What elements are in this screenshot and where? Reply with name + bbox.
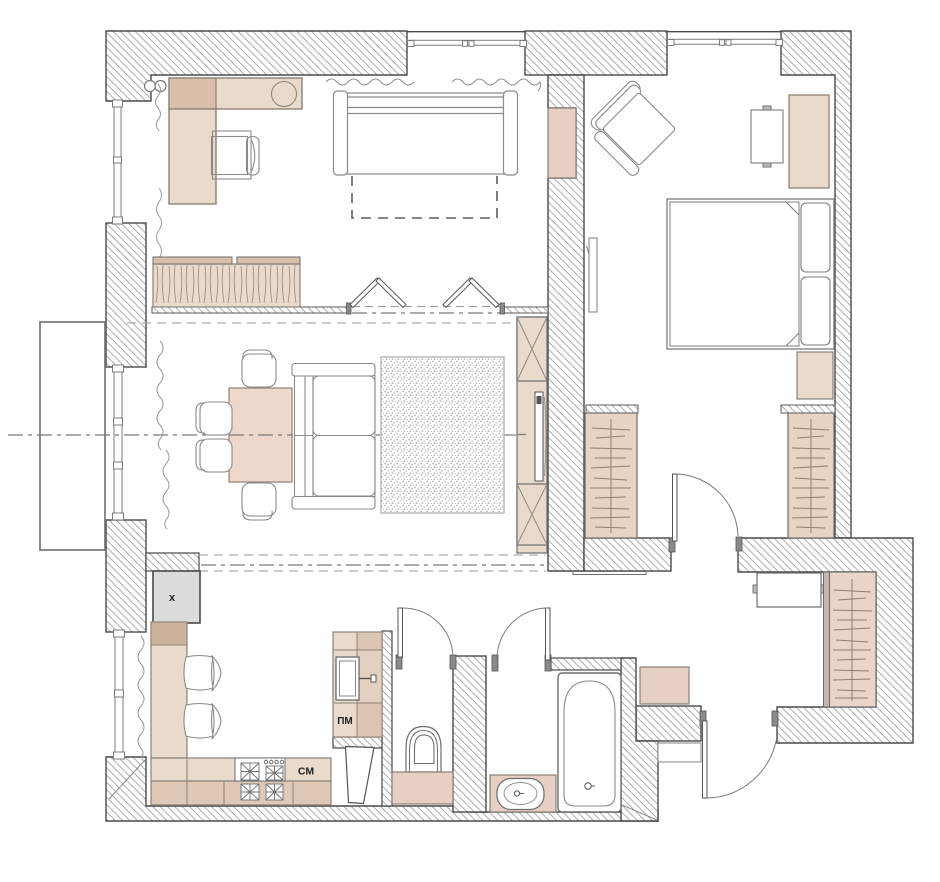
- svg-text:СМ: СМ: [298, 766, 314, 778]
- svg-text:x: x: [169, 592, 176, 604]
- svg-text:ПМ: ПМ: [337, 716, 353, 727]
